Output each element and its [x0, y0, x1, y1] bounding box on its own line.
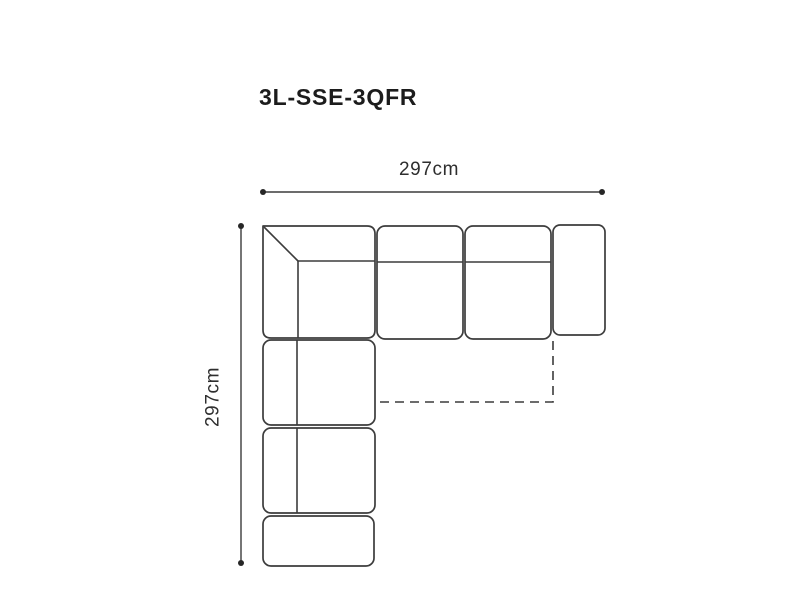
sofa-unit-seat-top-1 — [377, 226, 463, 339]
sofa-dimension-diagram: 3L-SSE-3QFR 297cm 297cm — [0, 0, 800, 600]
width-dimension-endpoint-left — [260, 189, 266, 195]
chaise-dashed-outline — [377, 341, 553, 402]
depth-dimension-label: 297cm — [203, 367, 224, 427]
depth-dimension-endpoint-top — [238, 223, 244, 229]
product-code-title: 3L-SSE-3QFR — [259, 84, 417, 110]
sofa-unit-arm-right — [553, 225, 605, 335]
sofa-unit-seat-left-2 — [263, 428, 375, 513]
sofa-unit-seat-left-1 — [263, 340, 375, 425]
width-dimension: 297cm — [260, 159, 605, 195]
sofa-unit-seat-top-2 — [465, 226, 551, 339]
width-dimension-endpoint-right — [599, 189, 605, 195]
depth-dimension: 297cm — [203, 223, 245, 566]
page: 3L-SSE-3QFR 297cm 297cm — [0, 0, 800, 600]
sofa-outline-group — [263, 225, 605, 566]
sofa-unit-arm-bottom — [263, 516, 374, 566]
width-dimension-label: 297cm — [399, 159, 459, 180]
depth-dimension-endpoint-bottom — [238, 560, 244, 566]
